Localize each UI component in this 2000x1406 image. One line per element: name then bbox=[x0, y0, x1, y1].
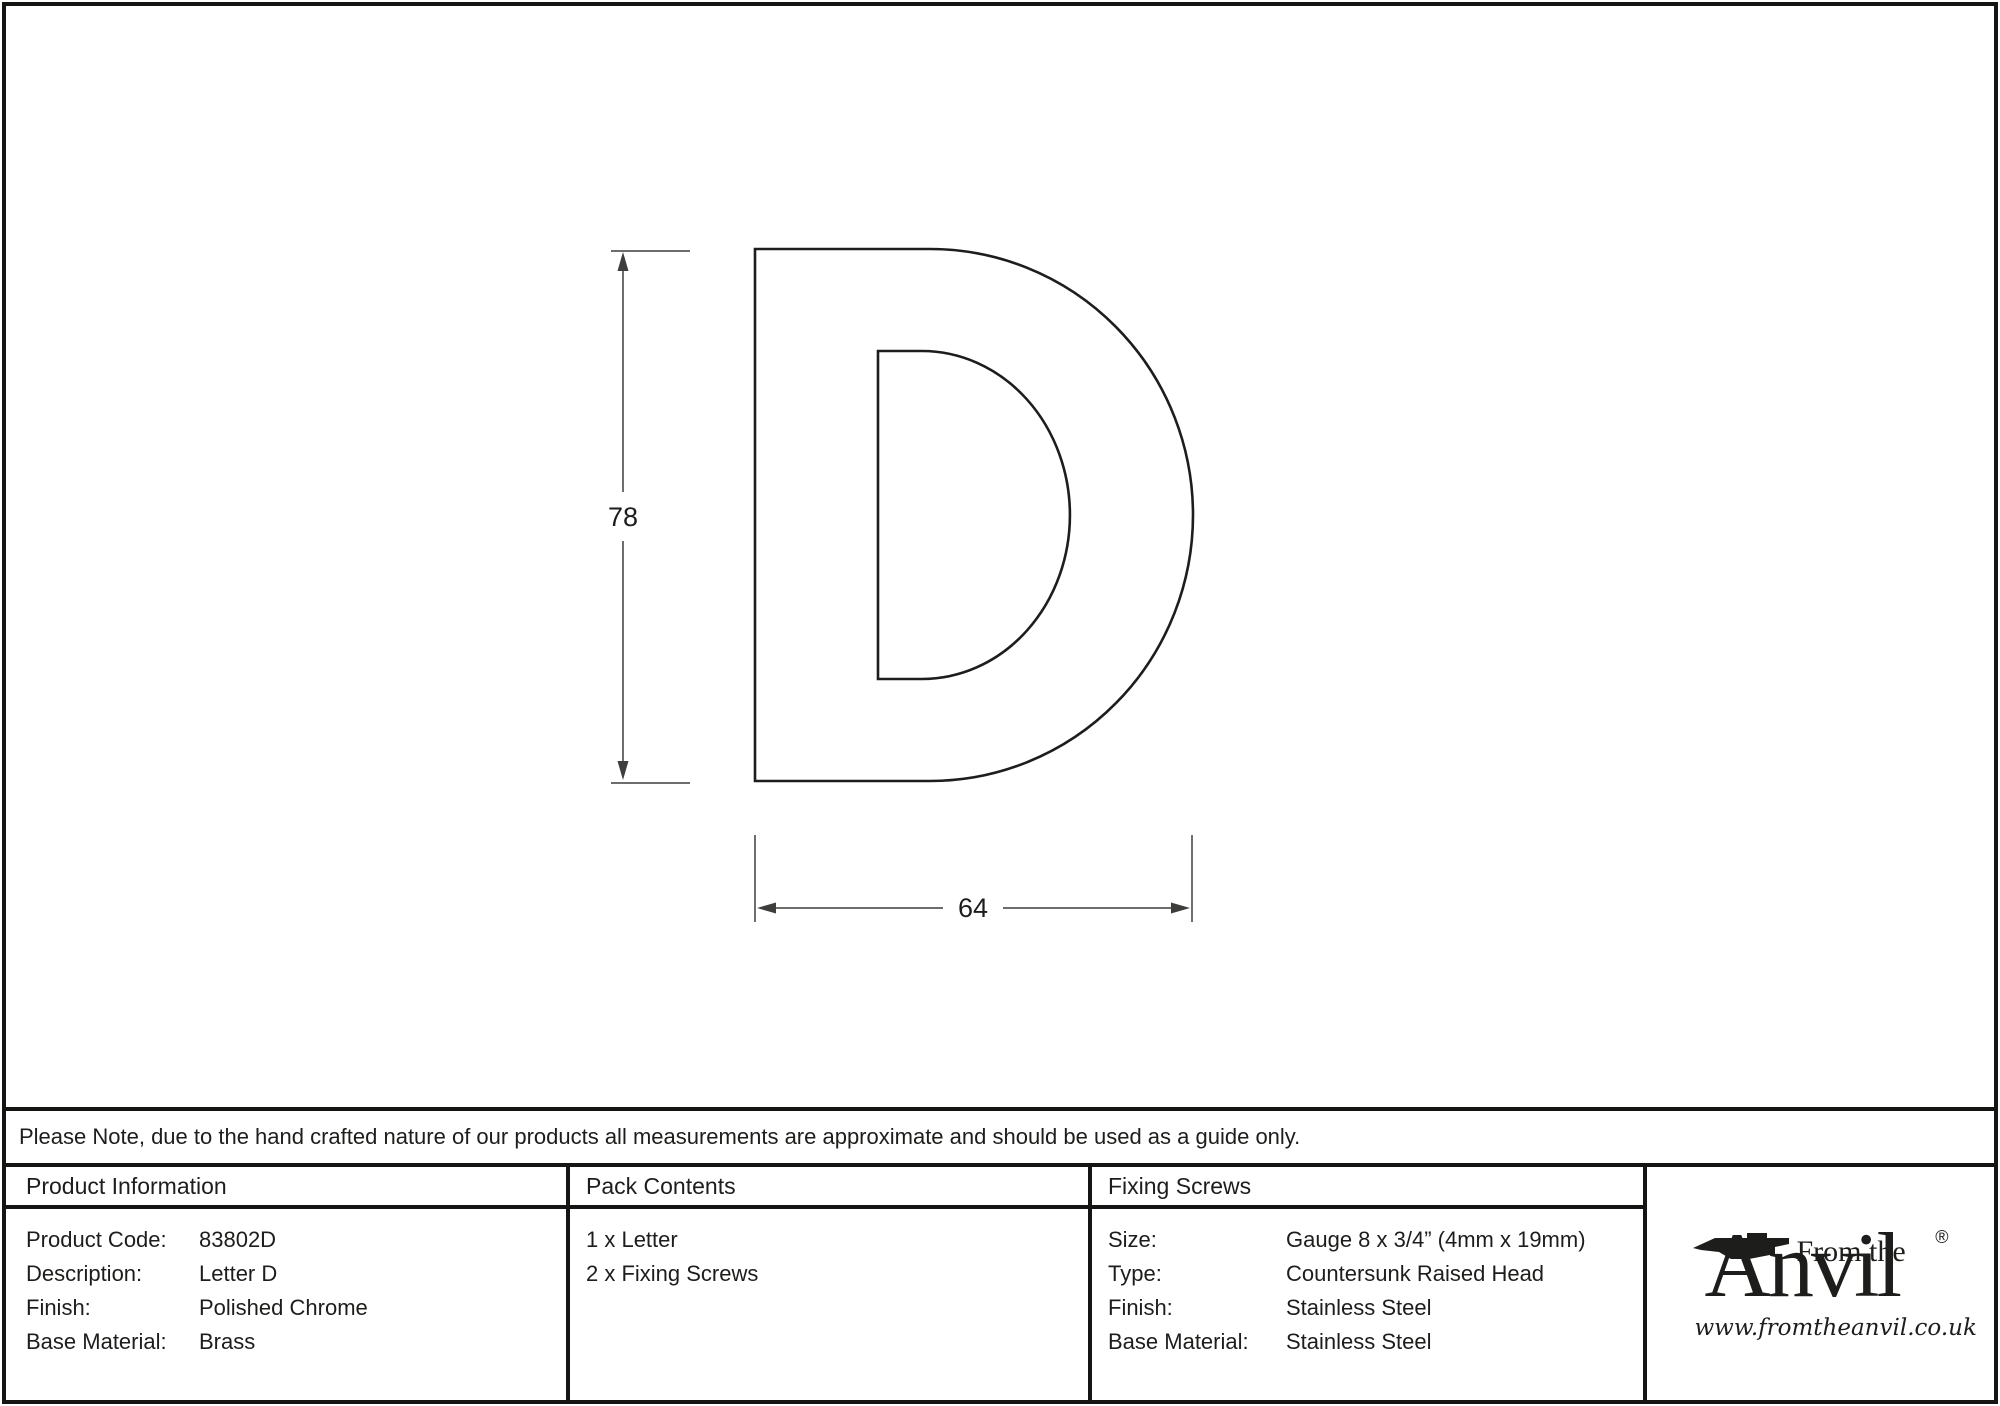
brand-logo-cell: Anvil From the ® www.fromtheanvil.co.uk bbox=[1647, 1167, 1994, 1400]
fixing-screws-body: Size: Gauge 8 x 3/4” (4mm x 19mm) Type: … bbox=[1092, 1209, 1643, 1359]
height-dimension: 78 bbox=[608, 251, 690, 783]
table-row: Product Code: 83802D bbox=[26, 1223, 566, 1257]
table-row: Finish: Stainless Steel bbox=[1108, 1291, 1643, 1325]
pack-contents-body: 1 x Letter 2 x Fixing Screws bbox=[570, 1209, 1088, 1291]
table-row: Type: Countersunk Raised Head bbox=[1108, 1257, 1643, 1291]
product-information-column: Product Information Product Code: 83802D… bbox=[6, 1167, 570, 1400]
note-bar: Please Note, due to the hand crafted nat… bbox=[6, 1107, 1994, 1167]
width-dim-arrow-left bbox=[757, 903, 776, 914]
fixing-screws-column: Fixing Screws Size: Gauge 8 x 3/4” (4mm … bbox=[1092, 1167, 1647, 1400]
spec-table: Product Information Product Code: 83802D… bbox=[6, 1167, 1994, 1400]
letter-d-counter-path bbox=[878, 351, 1070, 679]
note-text: Please Note, due to the hand crafted nat… bbox=[19, 1124, 1300, 1150]
pack-contents-column: Pack Contents 1 x Letter 2 x Fixing Scre… bbox=[570, 1167, 1092, 1400]
product-information-body: Product Code: 83802D Description: Letter… bbox=[6, 1209, 566, 1359]
list-item: 1 x Letter bbox=[586, 1223, 1088, 1257]
height-dim-label: 78 bbox=[608, 502, 638, 532]
info-section: Please Note, due to the hand crafted nat… bbox=[6, 1107, 1994, 1400]
spec-value: Stainless Steel bbox=[1286, 1325, 1432, 1359]
spec-label: Size: bbox=[1108, 1223, 1286, 1257]
product-information-header: Product Information bbox=[6, 1167, 566, 1209]
spec-value: Letter D bbox=[199, 1257, 277, 1291]
spec-value: Stainless Steel bbox=[1286, 1291, 1432, 1325]
height-dim-arrow-down bbox=[618, 761, 629, 780]
width-dimension: 64 bbox=[755, 835, 1192, 923]
brand-url: www.fromtheanvil.co.uk bbox=[1695, 1315, 1947, 1341]
letter-drawing: 78 64 bbox=[6, 6, 1994, 1101]
height-dim-arrow-up bbox=[618, 252, 629, 271]
width-dim-arrow-right bbox=[1171, 903, 1190, 914]
spec-value: Gauge 8 x 3/4” (4mm x 19mm) bbox=[1286, 1223, 1586, 1257]
spec-label: Finish: bbox=[26, 1291, 199, 1325]
registered-trademark-symbol: ® bbox=[1935, 1227, 1948, 1248]
spec-value: Brass bbox=[199, 1325, 255, 1359]
spec-label: Base Material: bbox=[1108, 1325, 1286, 1359]
spec-label: Type: bbox=[1108, 1257, 1286, 1291]
spec-value: Polished Chrome bbox=[199, 1291, 368, 1325]
table-row: Description: Letter D bbox=[26, 1257, 566, 1291]
width-dim-label: 64 bbox=[958, 893, 988, 923]
spec-sheet-page: { "drawing": { "letter": "D", "height_la… bbox=[0, 0, 2000, 1406]
sheet-frame: 78 64 Please Note, due to the hand craft… bbox=[2, 2, 1998, 1404]
pack-contents-header: Pack Contents bbox=[570, 1167, 1088, 1209]
list-item: 2 x Fixing Screws bbox=[586, 1257, 1088, 1291]
table-row: Base Material: Brass bbox=[26, 1325, 566, 1359]
table-row: Base Material: Stainless Steel bbox=[1108, 1325, 1643, 1359]
spec-value: Countersunk Raised Head bbox=[1286, 1257, 1544, 1291]
letter-d-outer-path bbox=[755, 249, 1193, 781]
spec-value: 83802D bbox=[199, 1223, 276, 1257]
table-row: Size: Gauge 8 x 3/4” (4mm x 19mm) bbox=[1108, 1223, 1643, 1257]
spec-label: Description: bbox=[26, 1257, 199, 1291]
from-the-anvil-logo: Anvil From the ® www.fromtheanvil.co.uk bbox=[1695, 1229, 1947, 1339]
table-row: Finish: Polished Chrome bbox=[26, 1291, 566, 1325]
letter-d-outline bbox=[755, 249, 1193, 781]
brand-tagline: From the bbox=[1797, 1235, 1906, 1269]
spec-label: Base Material: bbox=[26, 1325, 199, 1359]
fixing-screws-header: Fixing Screws bbox=[1092, 1167, 1643, 1209]
spec-label: Product Code: bbox=[26, 1223, 199, 1257]
spec-label: Finish: bbox=[1108, 1291, 1286, 1325]
